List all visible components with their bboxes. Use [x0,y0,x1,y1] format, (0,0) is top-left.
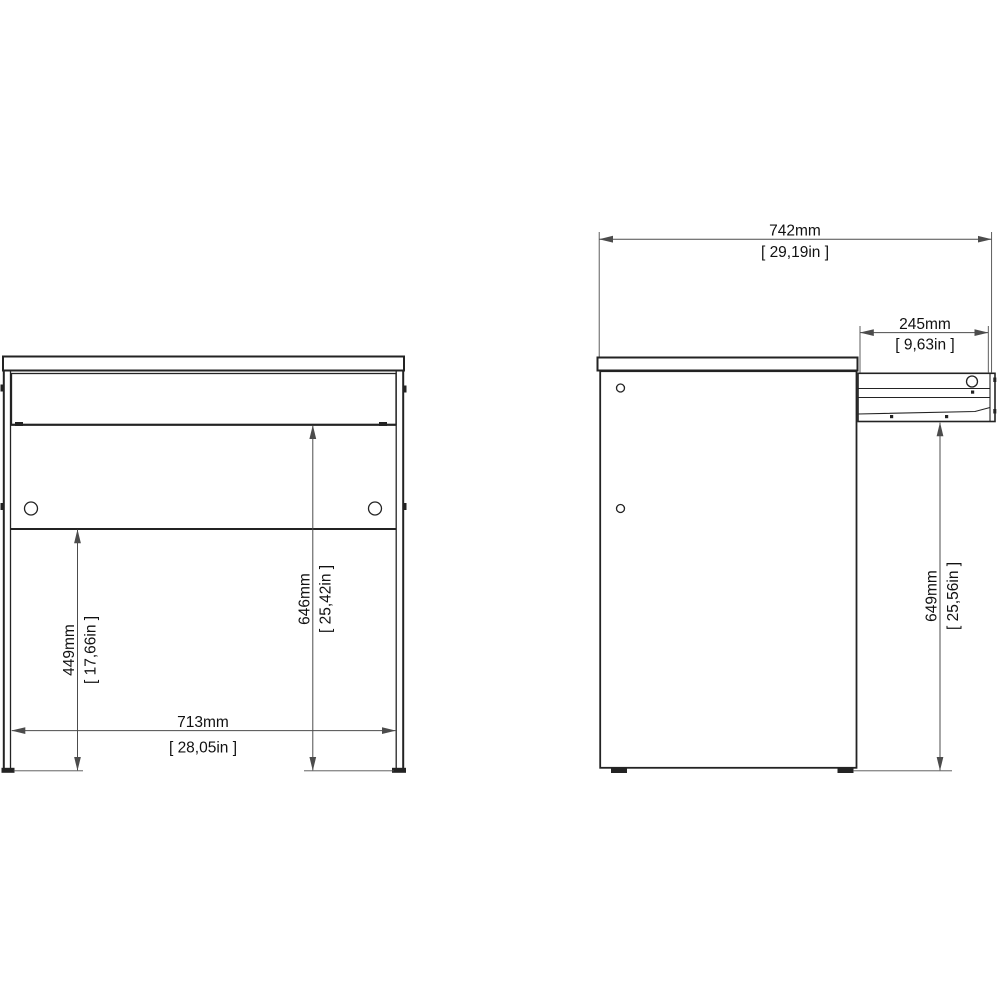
edge-connector-icon [993,378,996,383]
foot [2,768,15,773]
dim-label-total-depth-inch: [ 29,19in ] [761,244,829,261]
cam-hole-icon [369,502,382,515]
technical-drawing: 713mm [ 28,05in ] 449mm [ 17,66in ] 646m… [0,0,1000,1000]
drawer-slide-mark [379,422,387,426]
front-drawer-front [12,374,397,425]
side-tabletop [598,358,858,371]
side-drawer-runner [858,408,990,415]
cam-hole-icon [25,502,38,515]
foot [611,768,627,773]
foot [392,768,406,773]
dim-label-floor-to-shelf-inch: [ 17,66in ] [83,616,100,684]
screw-mark [945,415,948,418]
dim-label-drawer-depth-mm: 245mm [899,316,951,333]
dim-label-floor-to-shelf-mm: 449mm [61,624,78,676]
edge-connector-icon [403,503,407,510]
cam-hole-icon [617,384,625,392]
cam-hole-icon [617,505,625,513]
front-view: 713mm [ 28,05in ] 449mm [ 17,66in ] 646m… [1,357,407,773]
dim-label-floor-to-drawer-inch: [ 25,42in ] [318,565,335,633]
screw-mark [971,391,974,394]
side-view: 742mm [ 29,19in ] 245mm [ 9,63in ] 649mm… [598,223,997,774]
drawing-canvas: 713mm [ 28,05in ] 449mm [ 17,66in ] 646m… [0,0,1000,1000]
dim-label-floor-to-drawer-mm: 646mm [297,573,314,625]
dim-label-inner-width-mm: 713mm [177,714,229,731]
drawer-slide-mark [15,422,23,426]
front-tabletop [3,357,404,371]
drawer-knob-hole-icon [967,376,978,387]
dim-label-floor-to-underside-mm: 649mm [924,570,941,622]
side-panel [600,371,856,768]
dim-label-drawer-depth-inch: [ 9,63in ] [895,337,954,354]
foot [838,768,854,773]
dim-label-inner-width-inch: [ 28,05in ] [169,740,237,757]
screw-mark [890,415,893,418]
dim-label-floor-to-underside-inch: [ 25,56in ] [945,562,962,630]
edge-connector-icon [1,385,5,392]
dim-label-total-depth-mm: 742mm [769,223,821,240]
edge-connector-icon [993,409,996,414]
edge-connector-icon [403,386,407,393]
edge-connector-icon [1,503,5,510]
